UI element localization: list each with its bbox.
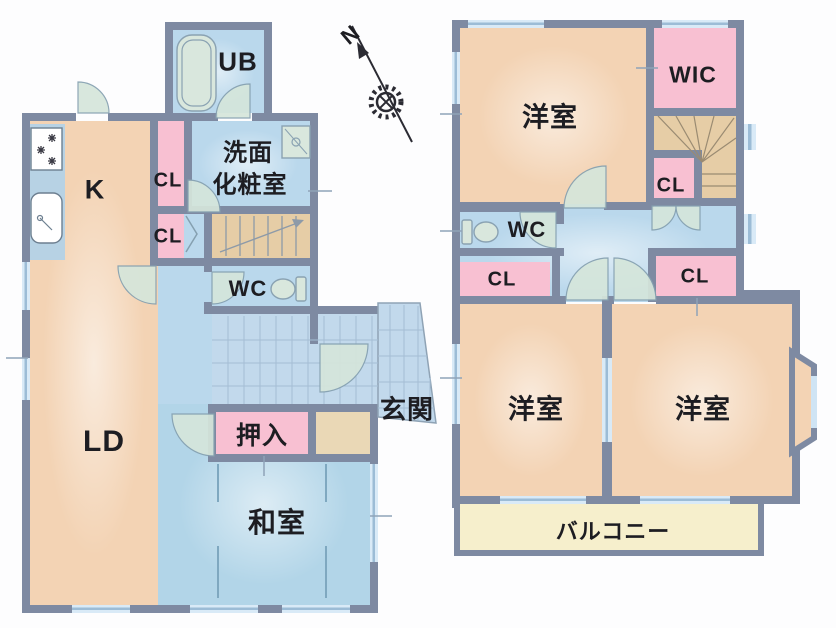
toilet-icon-floor1: [271, 277, 306, 301]
label-washroom-line1: 洗面: [223, 133, 273, 168]
bay-window: [792, 352, 814, 452]
label-oshiire: 押入: [236, 416, 288, 452]
toilet-icon-floor2: [462, 220, 498, 244]
label-kitchen: K: [85, 175, 106, 206]
door-arc-stair-closet-left: [652, 206, 676, 230]
kitchen-sink-icon: [31, 193, 62, 243]
label-closet-upper: CL: [154, 170, 183, 193]
bifold-closet-door: [186, 216, 197, 252]
door-arc-living: [118, 266, 156, 304]
label-closet-stairside: CL: [657, 175, 686, 198]
label-entrance: 玄関: [380, 390, 434, 427]
door-arc-bedroom-se: [614, 258, 656, 300]
door-arc-bedroom-sw: [566, 258, 608, 300]
overlay-graphics: N: [0, 0, 836, 628]
label-balcony: バルコニー: [556, 514, 671, 546]
label-living-dining: LD: [83, 425, 125, 459]
label-wc-floor1: WC: [229, 276, 268, 302]
stove-icon: [31, 128, 62, 170]
label-bedroom-sw: 洋室: [508, 388, 564, 427]
door-arc-stair-closet-right: [676, 206, 700, 230]
stair-treads-floor1: [220, 216, 304, 256]
door-arc-bedroom-nw: [564, 166, 606, 208]
label-closet-lower: CL: [154, 226, 183, 249]
label-washroom-line2: 化粧室: [213, 165, 288, 200]
label-closet-west: CL: [488, 269, 517, 292]
door-arc-kitchen-backdoor: [78, 82, 109, 113]
door-arc-unit-bath: [216, 84, 250, 118]
washbasin-icon: [282, 126, 310, 158]
bathtub-icon: [177, 35, 216, 111]
door-arc-japanese-room: [172, 414, 214, 456]
label-wc-floor2: WC: [508, 217, 547, 243]
compass: N: [336, 20, 412, 142]
label-closet-east: CL: [681, 266, 710, 289]
label-wic: WIC: [669, 62, 717, 89]
label-unit-bath: UB: [218, 47, 258, 78]
door-arc-front-door: [320, 344, 368, 392]
label-bedroom-nw: 洋室: [522, 96, 578, 135]
label-japanese-room: 和室: [248, 501, 306, 541]
label-bedroom-se: 洋室: [675, 388, 731, 427]
floorplan-canvas: N UB 洗面 化粧室 K CL CL WC LD 玄関 押入 和室 洋室 WI…: [0, 0, 836, 628]
